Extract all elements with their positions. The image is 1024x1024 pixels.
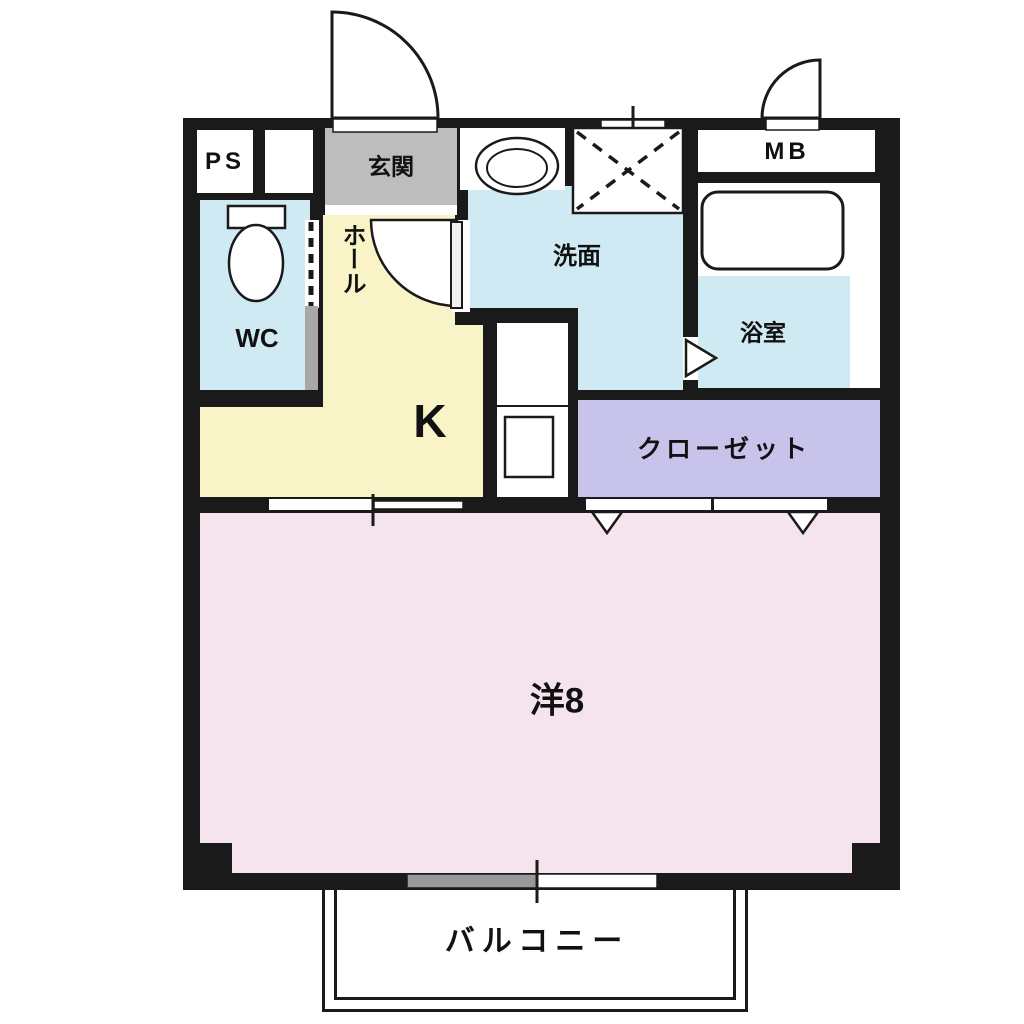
label-hall: ホール [339,223,363,295]
label-western-room: 洋8 [530,684,584,719]
meter-box-door-icon [762,60,820,118]
utility-box [265,130,313,193]
corner-pillar-right [852,843,900,890]
label-meter-box: MB [764,140,809,164]
label-bathroom: 浴室 [740,322,786,345]
corner-pillar-left [183,843,232,890]
kitchen-counter [497,323,568,497]
label-toilet: WC [235,325,278,351]
washstand-counter [460,128,565,190]
kitchen-area-left [200,407,323,497]
washroom-area-lower [578,250,683,390]
kitchen-area-right [455,325,483,497]
label-washroom: 洗面 [553,245,601,269]
label-entrance: 玄関 [368,156,414,179]
floor-plan: PS 玄関 MB WC ホール 洗面 浴室 K クローゼット 洋8 バルコニー [0,0,1024,1024]
bathroom-side-strip [850,276,880,388]
label-kitchen: K [413,398,446,444]
bathtub-zone [698,183,880,276]
entrance-door-icon [332,12,438,118]
toilet-room [200,200,310,390]
label-closet: クローゼット [637,438,811,463]
label-balcony: バルコニー [445,927,629,957]
label-pipe-space: PS [205,150,245,174]
